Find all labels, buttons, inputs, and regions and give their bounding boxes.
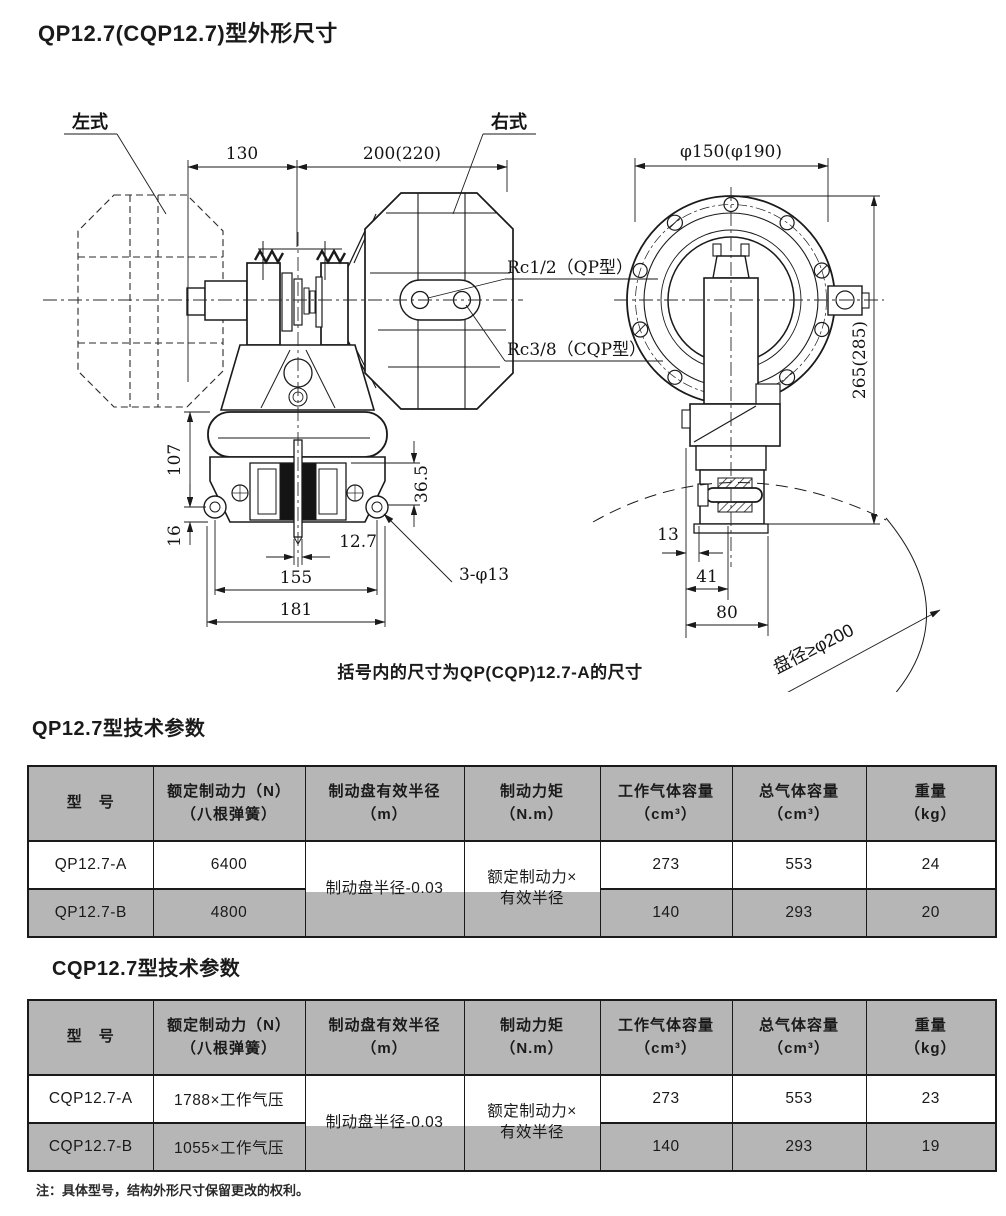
- cell-model: QP12.7-A: [28, 841, 153, 889]
- cell-total-volume: 553: [732, 841, 866, 889]
- dim-phi150: φ150(φ190): [680, 142, 782, 162]
- dim-13: 13: [657, 525, 679, 545]
- col-total-volume: 总气体容量 （cm³）: [732, 1000, 866, 1075]
- table-row: CQP12.7-A 1788×工作气压 制动盘半径-0.03 额定制动力× 有效…: [28, 1075, 996, 1123]
- cell-working-volume: 140: [600, 1123, 732, 1171]
- col-effective-radius: 制动盘有效半径 （m）: [305, 766, 464, 841]
- cell-brake-torque: 额定制动力× 有效半径: [464, 1075, 600, 1171]
- dim-36-5: 36.5: [412, 465, 432, 503]
- col-total-volume: 总气体容量 （cm³）: [732, 766, 866, 841]
- cell-force: 4800: [153, 889, 305, 937]
- cell-weight: 24: [866, 841, 996, 889]
- cell-effective-radius: 制动盘半径-0.03: [305, 1075, 464, 1171]
- side-view: 盘径≥φ200 φ150(φ190) 265(285) 13 41: [593, 142, 940, 692]
- cell-force: 1055×工作气压: [153, 1123, 305, 1171]
- dim-155: 155: [280, 568, 312, 588]
- page-title: QP12.7(CQP12.7)型外形尺寸: [38, 16, 338, 48]
- right-type-label: 右式: [491, 111, 527, 132]
- caliper-support: [221, 345, 374, 410]
- cqp-spec-table: 型 号 额定制动力（N） （八根弹簧） 制动盘有效半径 （m） 制动力矩 （N.…: [27, 999, 997, 1172]
- cell-total-volume: 553: [732, 1075, 866, 1123]
- spring-symbol-right: [317, 251, 345, 262]
- col-effective-radius: 制动盘有效半径 （m）: [305, 1000, 464, 1075]
- brake-pad-left: [280, 463, 294, 520]
- cell-weight: 19: [866, 1123, 996, 1171]
- col-working-volume: 工作气体容量 （cm³）: [600, 1000, 732, 1075]
- dim-130: 130: [226, 144, 258, 164]
- cell-total-volume: 293: [732, 1123, 866, 1171]
- through-bolt: [706, 488, 762, 502]
- port-label-qp: Rc1/2（QP型）: [507, 258, 633, 278]
- col-brake-torque: 制动力矩 （N.m）: [464, 766, 600, 841]
- dim-3-phi13: 3-φ13: [459, 565, 509, 585]
- dim-80: 80: [716, 603, 738, 623]
- qp-section-title: QP12.7型技术参数: [32, 712, 205, 741]
- cell-working-volume: 140: [600, 889, 732, 937]
- cell-model: CQP12.7-B: [28, 1123, 153, 1171]
- mount-hole-left: [204, 496, 226, 518]
- cell-working-volume: 273: [600, 841, 732, 889]
- col-model: 型 号: [28, 766, 153, 841]
- col-model: 型 号: [28, 1000, 153, 1075]
- dim-107: 107: [165, 444, 185, 476]
- dim-200-220: 200(220): [363, 144, 441, 164]
- dim-12-7: 12.7: [339, 532, 377, 552]
- brake-pad-right: [302, 463, 316, 520]
- right-type-octagon: [365, 193, 513, 409]
- col-rated-force: 额定制动力（N） （八根弹簧）: [153, 766, 305, 841]
- col-rated-force: 额定制动力（N） （八根弹簧）: [153, 1000, 305, 1075]
- dim-181: 181: [280, 600, 312, 620]
- spring-symbol-left: [255, 251, 283, 262]
- brake-body: [204, 412, 388, 544]
- cell-working-volume: 273: [600, 1075, 732, 1123]
- cqp-section-title: CQP12.7型技术参数: [52, 952, 240, 981]
- col-working-volume: 工作气体容量 （cm³）: [600, 766, 732, 841]
- cell-total-volume: 293: [732, 889, 866, 937]
- cell-force: 6400: [153, 841, 305, 889]
- cell-weight: 23: [866, 1075, 996, 1123]
- dim-41: 41: [696, 567, 718, 587]
- cell-force: 1788×工作气压: [153, 1075, 305, 1123]
- drawing-caption: 括号内的尺寸为QP(CQP)12.7-A的尺寸: [288, 658, 692, 683]
- catalog-page: QP12.7(CQP12.7)型外形尺寸: [0, 0, 1006, 1216]
- dim-265: 265(285): [850, 321, 870, 399]
- col-weight: 重量 （kg）: [866, 766, 996, 841]
- left-type-label: 左式: [72, 111, 108, 132]
- qp-header-row: 型 号 额定制动力（N） （八根弹簧） 制动盘有效半径 （m） 制动力矩 （N.…: [28, 766, 996, 841]
- col-weight: 重量 （kg）: [866, 1000, 996, 1075]
- table-row: QP12.7-A 6400 制动盘半径-0.03 额定制动力× 有效半径 273…: [28, 841, 996, 889]
- cell-model: CQP12.7-A: [28, 1075, 153, 1123]
- port-label-cqp: Rc3/8（CQP型）: [507, 340, 646, 360]
- cell-brake-torque: 额定制动力× 有效半径: [464, 841, 600, 937]
- col-brake-torque: 制动力矩 （N.m）: [464, 1000, 600, 1075]
- disc-diameter-note: 盘径≥φ200: [770, 620, 857, 678]
- dimension-drawing: 130 200(220) 107 16 36.5 12.7: [18, 92, 988, 692]
- cell-model: QP12.7-B: [28, 889, 153, 937]
- footnote: 注：具体型号，结构外形尺寸保留更改的权利。: [36, 1180, 309, 1199]
- front-view: 130 200(220) 107 16 36.5 12.7: [43, 111, 663, 627]
- cell-weight: 20: [866, 889, 996, 937]
- qp-spec-table: 型 号 额定制动力（N） （八根弹簧） 制动盘有效半径 （m） 制动力矩 （N.…: [27, 765, 997, 938]
- cell-effective-radius: 制动盘半径-0.03: [305, 841, 464, 937]
- dim-16: 16: [165, 525, 185, 547]
- cqp-header-row: 型 号 额定制动力（N） （八根弹簧） 制动盘有效半径 （m） 制动力矩 （N.…: [28, 1000, 996, 1075]
